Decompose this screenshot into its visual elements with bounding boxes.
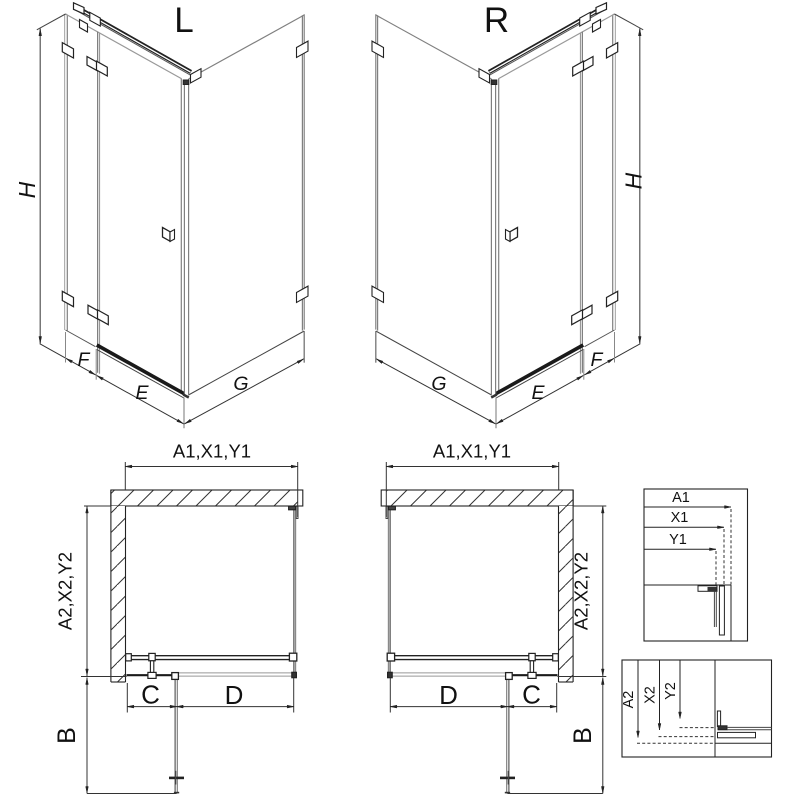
svg-text:C: C bbox=[141, 680, 160, 710]
svg-text:C: C bbox=[522, 680, 541, 710]
svg-text:E: E bbox=[531, 382, 545, 404]
svg-text:A2: A2 bbox=[621, 691, 637, 709]
svg-text:E: E bbox=[135, 382, 149, 404]
svg-text:X1: X1 bbox=[671, 510, 689, 526]
svg-text:B: B bbox=[53, 727, 81, 744]
svg-text:A1: A1 bbox=[672, 490, 690, 506]
svg-text:L: L bbox=[174, 1, 193, 40]
svg-text:F: F bbox=[591, 349, 604, 371]
svg-text:B: B bbox=[569, 727, 597, 744]
svg-text:H: H bbox=[621, 172, 647, 189]
svg-text:Y2: Y2 bbox=[663, 682, 679, 700]
svg-text:X2: X2 bbox=[642, 686, 658, 704]
svg-text:F: F bbox=[78, 349, 91, 371]
svg-text:R: R bbox=[484, 1, 509, 40]
svg-text:A1,X1,Y1: A1,X1,Y1 bbox=[173, 441, 251, 462]
svg-text:Y1: Y1 bbox=[669, 532, 687, 548]
svg-text:A2,X2,Y2: A2,X2,Y2 bbox=[570, 552, 591, 630]
svg-text:G: G bbox=[233, 373, 248, 395]
svg-text:H: H bbox=[14, 181, 40, 198]
svg-text:D: D bbox=[439, 680, 458, 710]
svg-text:G: G bbox=[431, 373, 446, 395]
svg-text:D: D bbox=[225, 680, 244, 710]
svg-text:A1,X1,Y1: A1,X1,Y1 bbox=[433, 441, 511, 462]
svg-text:A2,X2,Y2: A2,X2,Y2 bbox=[55, 552, 76, 630]
